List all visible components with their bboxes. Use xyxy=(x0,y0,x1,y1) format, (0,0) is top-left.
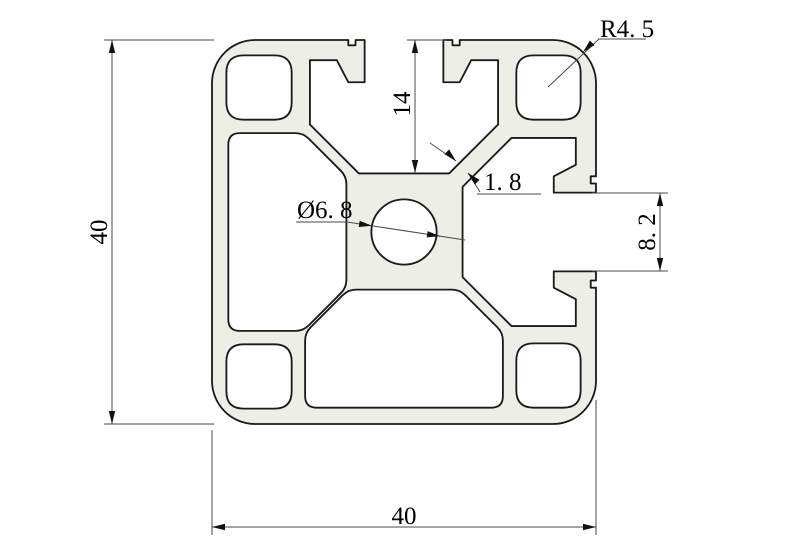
dim-corner-radius-label: R4. 5 xyxy=(600,16,654,43)
cavity-bottom xyxy=(305,290,503,408)
center-hole xyxy=(371,199,436,264)
dim-slot-opening-label: 8. 2 xyxy=(634,213,661,251)
arrowhead xyxy=(445,150,457,162)
cavity-bottom-left xyxy=(226,344,291,408)
cavity-top-left xyxy=(226,55,291,119)
drawing-canvas: 40 40 14 8. 2 R4. 5 Ø6. 8 1. 8 xyxy=(0,0,804,557)
dim-wall-thickness-label: 1. 8 xyxy=(484,169,522,196)
dim-slot-depth-label: 14 xyxy=(389,91,416,117)
arrowhead xyxy=(212,524,225,530)
profile-drawing: 40 40 14 8. 2 R4. 5 Ø6. 8 1. 8 xyxy=(0,0,804,557)
arrowhead xyxy=(412,40,418,53)
arrowhead xyxy=(657,258,663,271)
dim-center-hole-label: Ø6. 8 xyxy=(297,197,353,224)
arrowhead xyxy=(109,411,115,424)
arrowhead xyxy=(583,524,596,530)
cavity-left xyxy=(228,133,346,331)
arrowhead xyxy=(657,193,663,206)
arrowhead xyxy=(583,41,595,53)
dim-height-label: 40 xyxy=(86,220,113,245)
dim-width-label: 40 xyxy=(392,503,417,530)
arrowhead xyxy=(412,160,418,173)
arrowhead xyxy=(109,40,115,53)
cavity-bottom-right xyxy=(516,343,580,407)
